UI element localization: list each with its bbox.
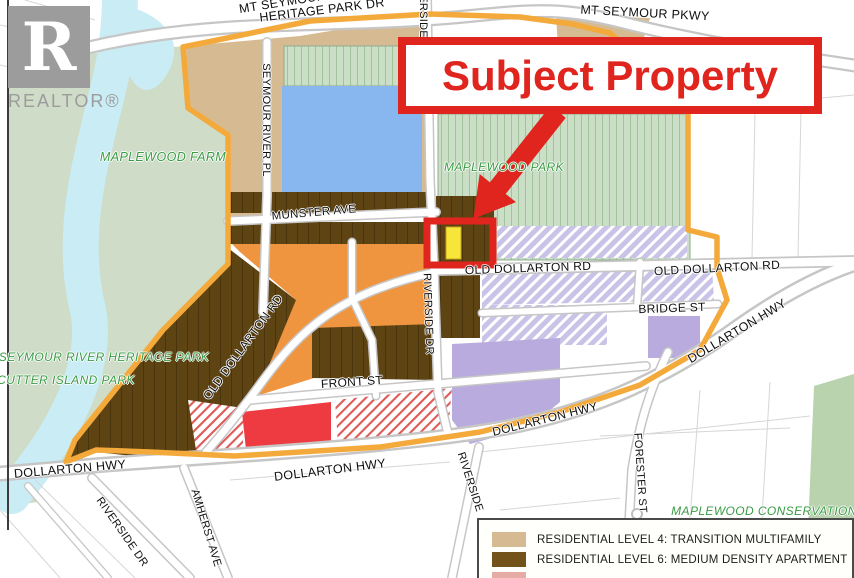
zoning-legend: RESIDENTIAL LEVEL 4: TRANSITION MULTIFAM… [477, 518, 854, 578]
legend-swatch-1 [492, 552, 526, 567]
realtor-logo-icon: R [8, 6, 90, 88]
legend-swatch-0 [492, 532, 526, 547]
legend-swatch-2 [492, 572, 526, 578]
realtor-wordmark: REALTOR® [8, 91, 108, 112]
subject-parcel [446, 227, 461, 259]
legend-rows: RESIDENTIAL LEVEL 4: TRANSITION MULTIFAM… [492, 532, 852, 578]
legend-row-2 [492, 572, 852, 578]
realtor-logo-letter: R [22, 14, 77, 80]
subject-property-callout: Subject Property [398, 37, 822, 114]
realtor-logo: R REALTOR® [8, 6, 108, 112]
legend-label-0: RESIDENTIAL LEVEL 4: TRANSITION MULTIFAM… [537, 534, 821, 546]
legend-row-0: RESIDENTIAL LEVEL 4: TRANSITION MULTIFAM… [492, 532, 852, 547]
legend-label-1: RESIDENTIAL LEVEL 6: MEDIUM DENSITY APAR… [537, 554, 847, 566]
legend-row-1: RESIDENTIAL LEVEL 6: MEDIUM DENSITY APAR… [492, 552, 852, 567]
zoning-map: MT SEYMOUR PKWYMT SEYMOUR PKWYHERITAGE P… [0, 0, 854, 578]
subject-property-label: Subject Property [442, 52, 778, 100]
